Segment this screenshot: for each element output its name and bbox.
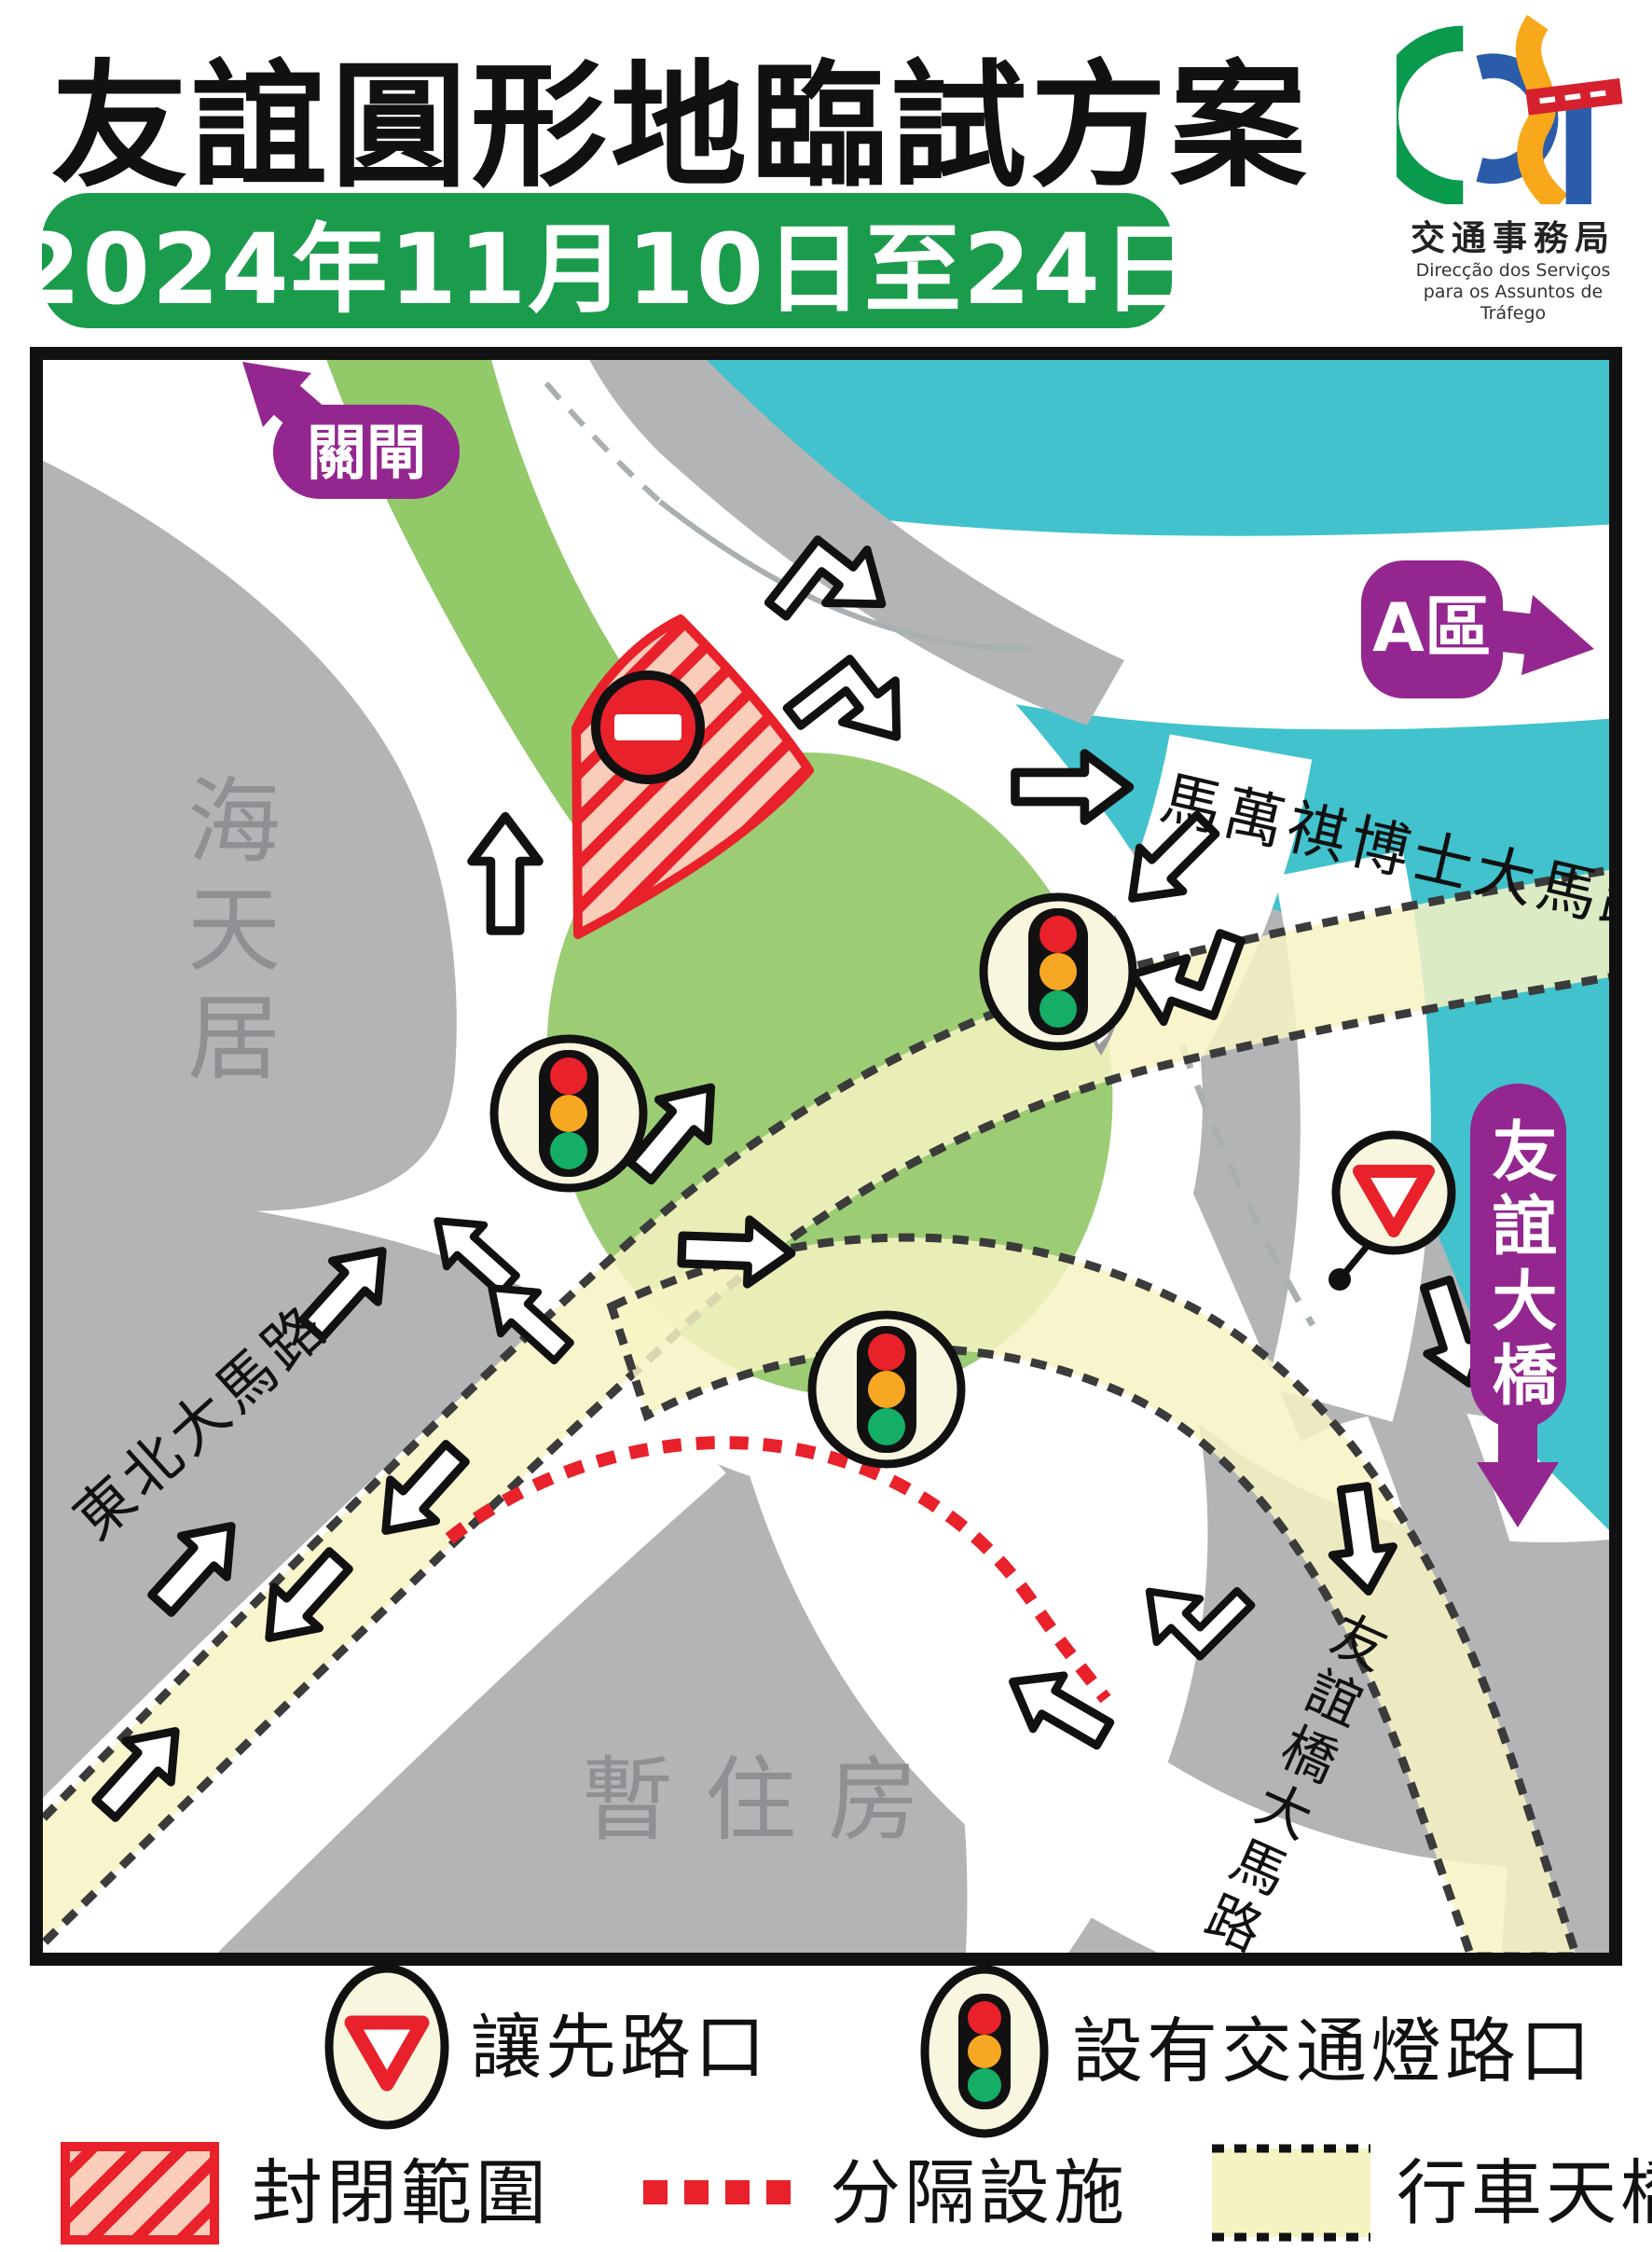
building-label-hoi-tin-kui: 海天居 xyxy=(172,772,281,1097)
svg-text:關閘: 關閘 xyxy=(307,420,426,489)
legend-closed-area-swatch xyxy=(65,2147,214,2240)
traffic-light-icon xyxy=(984,897,1133,1046)
traffic-light-icon xyxy=(812,1315,961,1464)
svg-text:A區: A區 xyxy=(1372,588,1492,667)
legend-signal-label: 設有交通燈路口 xyxy=(1072,2010,1594,2093)
legend-yield-label: 讓先路口 xyxy=(471,2006,769,2089)
legend-canvas: 讓先路口 設有交通燈路口 封閉範圍 分隔設施 行車天橋 xyxy=(0,1964,1652,2252)
page-title: 友誼圓形地臨試方案 xyxy=(51,17,1356,214)
legend-flyover-label: 行車天橋 xyxy=(1397,2151,1652,2234)
legend-separation-label: 分隔設施 xyxy=(830,2151,1128,2234)
no-entry-icon xyxy=(596,675,700,780)
dsat-logo-pt2: para os Assuntos de Tráfego xyxy=(1397,282,1630,325)
traffic-map: 馬萬祺博士大馬路 東北大馬路 友誼橋大馬路 海天居 暫住房 關閘 A區 友誼大橋 xyxy=(30,347,1622,1966)
traffic-light-icon xyxy=(494,1039,643,1188)
poster: 友誼圓形地臨試方案 2024年11月10日至24日 交通事務局 Direcção… xyxy=(0,0,1652,2252)
legend-separation-swatch xyxy=(643,2180,791,2204)
date-banner: 2024年11月10日至24日 xyxy=(42,193,1172,328)
traffic-map-canvas: 馬萬祺博士大馬路 東北大馬路 友誼橋大馬路 海天居 暫住房 關閘 A區 友誼大橋 xyxy=(43,360,1609,1953)
dsat-logo: 交通事務局 Direcção dos Serviços para os Assu… xyxy=(1397,13,1630,325)
svg-text:友誼大橋: 友誼大橋 xyxy=(1481,1117,1558,1416)
legend-flyover-swatch xyxy=(1212,2148,1370,2237)
legend-closed-area-label: 封閉範圍 xyxy=(252,2151,550,2234)
dsat-logo-icon xyxy=(1397,13,1630,204)
legend-traffic-light-icon xyxy=(925,1969,1044,2134)
date-banner-text: 2024年11月10日至24日 xyxy=(13,190,1201,331)
legend: 讓先路口 設有交通燈路口 封閉範圍 分隔設施 行車天橋 xyxy=(0,1964,1652,2252)
dsat-logo-cn: 交通事務局 xyxy=(1397,210,1630,260)
building-label-temporary-housing: 暫住房 xyxy=(582,1748,951,1854)
dsat-logo-pt1: Direcção dos Serviços xyxy=(1397,260,1630,282)
legend-yield-icon xyxy=(329,1969,445,2125)
